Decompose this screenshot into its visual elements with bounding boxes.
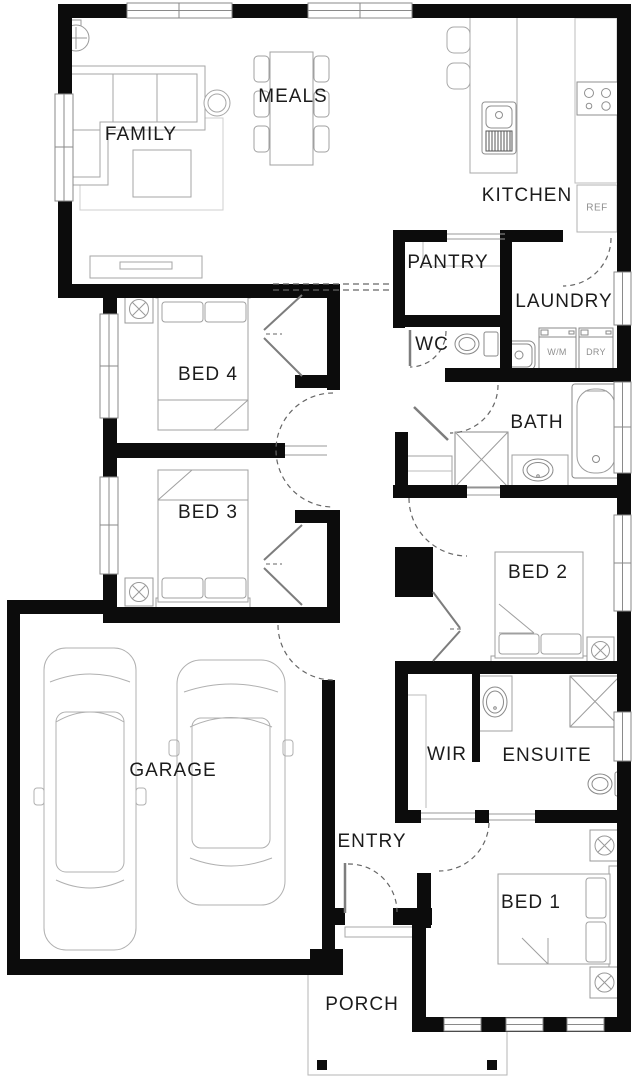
floor-plan-drawing bbox=[0, 0, 638, 1080]
bed4-furniture bbox=[156, 288, 250, 430]
room-label-wir: WIR bbox=[427, 744, 467, 766]
wir-shelves bbox=[408, 695, 426, 808]
room-label-wc: WC bbox=[415, 334, 449, 356]
dryer-label: DRY bbox=[586, 347, 606, 357]
ensuite-fixtures bbox=[478, 676, 628, 796]
meals-furniture bbox=[254, 52, 329, 165]
room-label-pantry: PANTRY bbox=[407, 252, 488, 274]
room-label-ensuite: ENSUITE bbox=[502, 745, 591, 767]
fridge-label: REF bbox=[586, 203, 608, 214]
room-label-family: FAMILY bbox=[105, 124, 177, 146]
room-label-porch: PORCH bbox=[325, 994, 399, 1016]
wc-toilet-icon bbox=[455, 332, 498, 356]
room-label-meals: MEALS bbox=[258, 86, 327, 108]
car-icon bbox=[34, 648, 146, 950]
room-label-laundry: LAUNDRY bbox=[515, 291, 612, 313]
room-label-bed2: BED 2 bbox=[508, 562, 568, 584]
door-sill bbox=[345, 927, 421, 937]
room-label-kitchen: KITCHEN bbox=[482, 185, 572, 207]
floor-plan: FAMILY MEALS KITCHEN PANTRY LAUNDRY WC B… bbox=[0, 0, 638, 1080]
room-label-bed3: BED 3 bbox=[178, 502, 238, 524]
room-label-bed1: BED 1 bbox=[501, 892, 561, 914]
room-label-bed4: BED 4 bbox=[178, 364, 238, 386]
family-room-furniture bbox=[62, 66, 230, 278]
washer-label: W/M bbox=[547, 347, 566, 357]
bath-fixtures bbox=[400, 384, 620, 487]
bed1-furniture bbox=[498, 866, 619, 970]
room-label-bath: BATH bbox=[510, 412, 563, 434]
door-leaves bbox=[345, 330, 448, 913]
room-label-entry: ENTRY bbox=[337, 831, 406, 853]
room-label-garage: GARAGE bbox=[129, 760, 216, 782]
car-icon bbox=[169, 660, 293, 905]
bed3-furniture bbox=[156, 470, 250, 608]
